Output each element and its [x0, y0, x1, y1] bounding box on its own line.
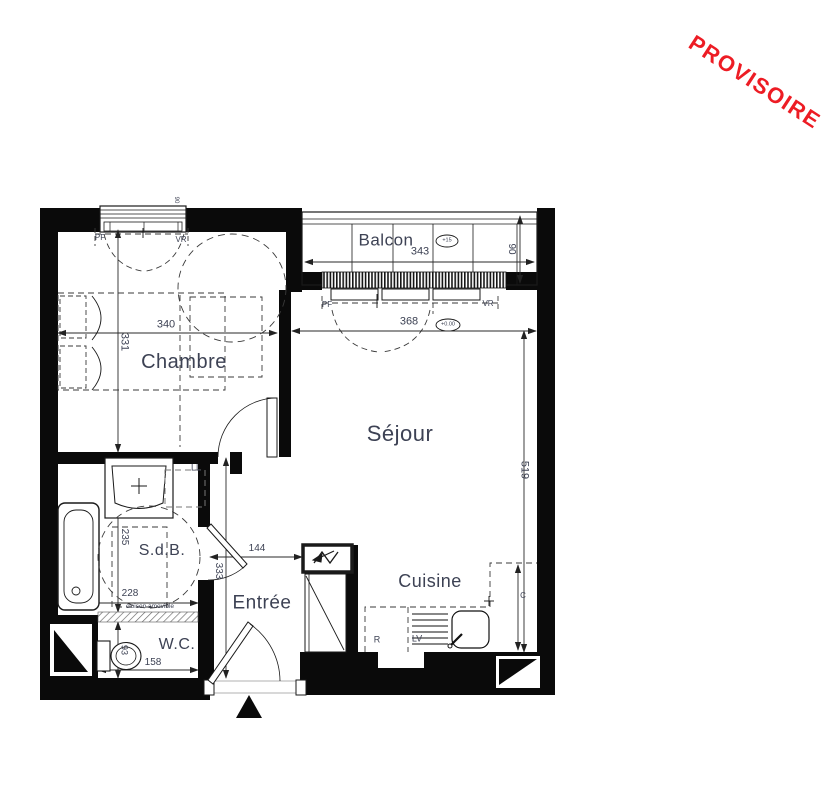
dim-sdb-width: 228: [122, 589, 139, 599]
dim-balcon-width: 343: [411, 247, 429, 258]
dim-sejour-width: 368: [400, 317, 418, 328]
room-label-sdb: S.d.B.: [139, 543, 186, 559]
dim-window-width: 90: [173, 197, 179, 204]
label-washing-machine: LL: [191, 464, 201, 473]
dim-wc-depth: 93: [120, 645, 129, 655]
floorplan-page: PROVISOIRE Balcon Chambre Séjour Cuisine…: [0, 0, 830, 800]
dim-chambre-height: 331: [119, 333, 130, 351]
dim-wc-width: 158: [145, 658, 162, 668]
dim-hall-width: 144: [249, 544, 266, 554]
label-pf-chambre: PF: [95, 234, 105, 242]
label-pf-sejour: PF: [322, 301, 332, 309]
level-balcon: +15: [442, 238, 451, 244]
room-label-cuisine: Cuisine: [398, 572, 462, 590]
room-label-wc: W.C.: [159, 637, 196, 653]
dim-sdb-height: 235: [119, 529, 129, 546]
label-fridge: R: [374, 636, 381, 645]
level-sejour: +0.00: [441, 322, 455, 328]
floorplan-linework: [0, 0, 830, 800]
label-counter: C: [520, 592, 526, 600]
label-dishwasher: LV: [412, 635, 422, 644]
dim-balcon-depth: 90: [506, 243, 516, 254]
bedroom-window-swing: [95, 228, 188, 271]
room-label-balcon: Balcon: [359, 232, 414, 249]
dim-hall-height: 333: [213, 563, 223, 580]
dim-sejour-height: 519: [519, 461, 530, 479]
room-label-chambre: Chambre: [141, 352, 227, 372]
entry-closet: [303, 545, 352, 652]
dim-chambre-width: 340: [157, 320, 175, 331]
bedroom-furniture: [58, 234, 286, 447]
label-vr-sejour: VR: [482, 300, 493, 308]
room-label-entree: Entrée: [233, 594, 292, 613]
label-vr-chambre: VR: [175, 236, 186, 244]
room-label-sejour: Séjour: [367, 423, 434, 445]
entry-arrow: [236, 695, 262, 718]
label-removable-partition: cloison amovible: [126, 604, 174, 611]
